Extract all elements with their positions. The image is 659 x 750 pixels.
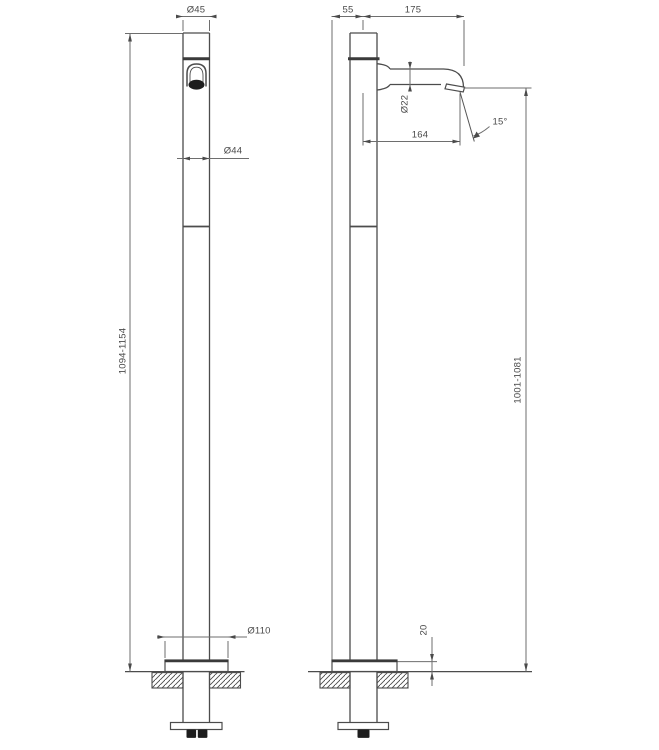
side-mounting-plate <box>338 723 389 730</box>
front-body-diameter-label: Ø44 <box>224 146 243 157</box>
front-dim-arrows <box>128 15 235 672</box>
side-base-offset-label: 55 <box>343 5 354 16</box>
side-outlet-angle-label: 15° <box>493 117 508 128</box>
side-mounting-nut <box>358 730 370 738</box>
drawing-linework <box>0 0 659 750</box>
front-mounting-plate <box>171 723 223 730</box>
front-column <box>183 33 210 660</box>
front-mounting-nut-left <box>187 730 197 738</box>
front-base-diameter-label: Ø110 <box>247 626 270 637</box>
technical-drawing-canvas: Ø45 Ø44 Ø110 1094-1154 55 175 Ø22 164 15… <box>0 0 659 750</box>
front-dim-lines <box>125 17 249 672</box>
front-overall-height-label: 1094-1154 <box>118 328 129 375</box>
side-spout-reach-label: 175 <box>405 5 421 16</box>
side-floor-hatch-right <box>377 673 408 688</box>
side-floor-hatch-left <box>320 673 350 688</box>
side-spout <box>377 64 465 92</box>
side-outlet-height-label: 1001-1081 <box>513 356 524 403</box>
side-shank <box>350 672 377 723</box>
side-spout-tip <box>445 84 465 92</box>
front-mounting-nut-right <box>198 730 208 738</box>
front-shank <box>183 672 210 723</box>
side-base-height-label: 20 <box>419 625 430 636</box>
side-dim-arrows <box>332 15 528 680</box>
front-floor-hatch-right <box>210 673 241 688</box>
front-cap-diameter-label: Ø45 <box>187 5 206 16</box>
side-outlet-offset-label: 164 <box>412 130 428 141</box>
front-spout-outlet <box>187 64 206 90</box>
front-view <box>125 33 245 738</box>
front-floor-hatch-left <box>152 673 183 688</box>
side-spout-diameter-label: Ø22 <box>400 95 411 114</box>
front-aerator <box>189 80 205 90</box>
